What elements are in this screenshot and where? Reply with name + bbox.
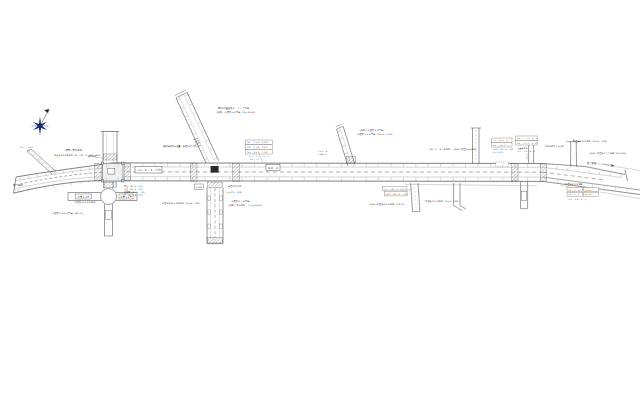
slope-hatch-ticks — [178, 99, 181, 100]
annotation-text: （仮称）市道第５６号線（Ｗ＝１６Ｍ） — [215, 111, 256, 114]
branch-road-edge — [337, 129, 349, 166]
curb-cut-box — [208, 196, 211, 200]
annotation-text: 市道第１２３４号線（その２） — [52, 212, 84, 215]
corner-block — [122, 162, 124, 164]
annotation-text: （仮称）市道第６６６号線（その４） — [368, 203, 405, 206]
slope-hatch-ticks — [33, 155, 36, 156]
station-ticks — [36, 187, 37, 190]
curb-cut-box — [208, 210, 211, 214]
crosswalk-hatch — [103, 182, 116, 187]
crosswalk-hatch — [347, 157, 356, 163]
corner-block — [101, 162, 103, 164]
station-value: Ｎｏ．７＋０．０００ — [247, 141, 268, 143]
leader-line — [22, 185, 30, 186]
curb-cut-box — [208, 224, 211, 228]
sidewalk-line — [184, 94, 215, 161]
slope-hatch-ticks — [340, 138, 343, 139]
annotation-text: 市道第８９０１号線外（Ｗ＝６．０Ｍ） — [162, 201, 201, 205]
station-ticks — [29, 176, 30, 179]
slope-hatch-ticks — [197, 142, 200, 143]
annotation-text: 歩道切下げ工 — [228, 185, 242, 188]
crosswalk-hatch — [233, 164, 240, 182]
branch-road-edge — [31, 149, 56, 172]
road-edge — [112, 163, 543, 164]
branch-road-edge — [27, 151, 52, 174]
crosswalk-hatch — [194, 138, 199, 140]
slope-hatch-ticks — [214, 158, 217, 159]
annotation-text: （仮称）市道第７７７号線（Ｗ＝６Ｍ） — [588, 152, 627, 155]
station-value: Ｎｏ８ — [196, 186, 203, 189]
station-value: Ｎｏ．１９＋５．４３２ — [517, 142, 538, 144]
station-label-box — [106, 211, 112, 220]
slope-hatch-ticks — [185, 116, 188, 117]
crosswalk-hatch — [207, 237, 222, 243]
station-value: ＫＥ－１ １９＋０．０ — [517, 137, 538, 139]
scale-label: Ｓ＝１：５００ — [20, 146, 34, 148]
island-symbol — [108, 168, 115, 174]
station-value: ＢＣ＝１８＋４．５６ — [493, 148, 513, 150]
road-centerline — [543, 172, 605, 180]
north-arrow-flag — [44, 109, 49, 113]
slope-hatch-ticks — [181, 107, 184, 108]
slope-hatch-ticks — [186, 95, 189, 96]
station-value: Ｎｏ．１６＋５．０００ — [384, 188, 406, 190]
annotation-text: 都市計画道路３・４・７号線 — [218, 106, 250, 110]
station-value: Ｎｏ．２２＋４．５ — [569, 198, 587, 200]
road-edge — [112, 181, 543, 182]
station-ticks — [72, 170, 73, 173]
station-value: ＢＣ．１６＋８．１２３ — [386, 193, 408, 195]
slope-hatch-ticks — [210, 149, 213, 150]
crosswalk-hatch — [512, 164, 518, 181]
slope-hatch-ticks — [343, 145, 346, 146]
station-label-box — [496, 162, 509, 167]
station-value: ＫＡ－２ ７＋９．０ — [249, 155, 269, 157]
slope-hatch-ticks — [193, 133, 196, 134]
station-value: ２２＋５．０ — [568, 193, 579, 195]
station-value: １２＋３４５．６７ — [493, 139, 510, 141]
station-value: ＫＥ２２ — [584, 193, 592, 195]
annotation-text: （仮称）市道第２２号線 — [358, 129, 384, 132]
station-ticks — [89, 167, 90, 170]
road-plan-drawing: （市）３・４・６号ＢＭ．３Ｎｏ．７＋０．０００ＥＣ ７＋８．２５３Ｎｏ．８＋３．… — [0, 0, 640, 401]
corner-block — [101, 180, 103, 182]
side-road-edge — [460, 206, 466, 209]
annotation-text: 市道第９９９号線 — [565, 183, 583, 186]
direction-arrow-head — [611, 164, 614, 167]
crosswalk-hatch — [540, 164, 546, 181]
station-value: ２４６．８ — [318, 150, 328, 152]
station-ticks — [20, 177, 21, 180]
road-end-cut — [27, 149, 31, 151]
curb-cut-box — [220, 224, 223, 228]
annotation-text: 市道第３３４号線（Ｗ＝４．５Ｍ） — [357, 133, 394, 136]
station-value: Ｒ＝３００ — [493, 151, 503, 153]
road-centerline — [414, 183, 416, 211]
side-road-edge — [411, 183, 413, 212]
annotation-text: 現況舗装すり付け工 — [545, 145, 564, 148]
road-end-cut — [336, 124, 343, 127]
crosswalk-hatch — [190, 164, 197, 182]
road-end-cut — [625, 170, 628, 181]
annotation-text: （市道第２３４５号線） — [73, 201, 97, 204]
annotation-text: 市道第８８８号線（Ｗ＝４．０Ｍ） — [573, 140, 608, 143]
crosswalk-hatch — [124, 164, 131, 181]
annotation-text: （仮称）第３工区 Ｌ＝２４０Ｍ — [227, 204, 261, 207]
station-value: Ｎｏ．８＋３．１２０ — [247, 151, 268, 153]
drawing-page: （市）３・４・６号ＢＭ．３Ｎｏ．７＋０．０００ＥＣ ７＋８．２５３Ｎｏ．８＋３．… — [0, 0, 640, 401]
corner-block — [122, 180, 124, 182]
building-symbol — [211, 166, 219, 173]
station-ticks — [88, 180, 89, 183]
road-end-cut — [337, 126, 344, 129]
slope-hatch-ticks — [345, 153, 348, 154]
station-value: Ｎｏ．１８＋２．５ — [493, 144, 510, 146]
slope-hatch-ticks — [202, 131, 205, 132]
slope-hatch-ticks — [189, 124, 192, 125]
station-ticks — [80, 168, 81, 171]
benchmark-label: ＢＭ．３ — [268, 167, 278, 170]
station-value: ＫＡ２２ — [584, 189, 592, 191]
slope-hatch-ticks — [194, 113, 197, 114]
leader-line — [96, 157, 103, 159]
destination-label: 至 扇町 — [13, 183, 23, 187]
station-value: ＥＣ ７＋８．２５３ — [247, 146, 268, 148]
crosswalk-hatch — [103, 154, 116, 160]
annotation-text: 市道第６７８号線 — [231, 200, 250, 203]
annotation-text: Ｌ＝３２．０Ｍ — [226, 191, 241, 194]
branch-road-edge — [176, 98, 206, 163]
station-tick-label: Ｎｏ．１０ — [250, 158, 259, 160]
station-ticks — [37, 175, 38, 178]
annotation-text: 横断歩道予定位置 歩道切下げ工 — [163, 144, 197, 148]
crosswalk-hatch — [95, 164, 102, 181]
slope-hatch-ticks — [46, 167, 49, 168]
minor-intersection-circle — [101, 189, 117, 205]
route-label: 市第１２号 — [78, 195, 91, 199]
station-label-box — [521, 192, 526, 201]
leader-line — [407, 190, 413, 191]
curb-cut-box — [220, 210, 223, 214]
station-value: ２２＋０．０ — [568, 189, 579, 191]
slope-hatch-ticks — [201, 150, 204, 151]
slope-hatch-ticks — [190, 104, 193, 105]
side-road-edge — [418, 183, 420, 212]
route-label: （市）３・４・６号 — [136, 168, 161, 172]
slope-hatch-ticks — [42, 163, 45, 164]
slope-hatch-ticks — [338, 131, 341, 132]
annotation-text: 横断歩道 — [88, 155, 98, 158]
destination-label: 至 国道 — [587, 162, 597, 165]
station-value: Ｎｏ．１９＋８．０ — [518, 150, 536, 152]
drawing-layers: （市）３・４・６号ＢＭ．３Ｎｏ．７＋０．０００ＥＣ ７＋８．２５３Ｎｏ．８＋３．… — [13, 90, 640, 244]
annotation-text: （市道第５５５号線 Ｗ＝４．０Ｍ） — [423, 200, 460, 203]
sidewalk-line — [179, 96, 209, 162]
service-road-line — [405, 184, 537, 186]
annotation-text: （仮称）第６工区 — [63, 149, 83, 152]
station-value: ＫＢＭ．４ — [318, 153, 328, 155]
slope-hatch-ticks — [206, 140, 209, 141]
slope-hatch-ticks — [205, 159, 208, 160]
annotation-text: （都）３・４・８号線 （仮称）市道第４４号線 — [428, 148, 477, 151]
curb-cut-box — [220, 196, 223, 200]
slope-hatch-ticks — [198, 122, 201, 123]
slope-hatch-ticks — [37, 159, 40, 160]
crosswalk-hatch — [207, 182, 223, 188]
